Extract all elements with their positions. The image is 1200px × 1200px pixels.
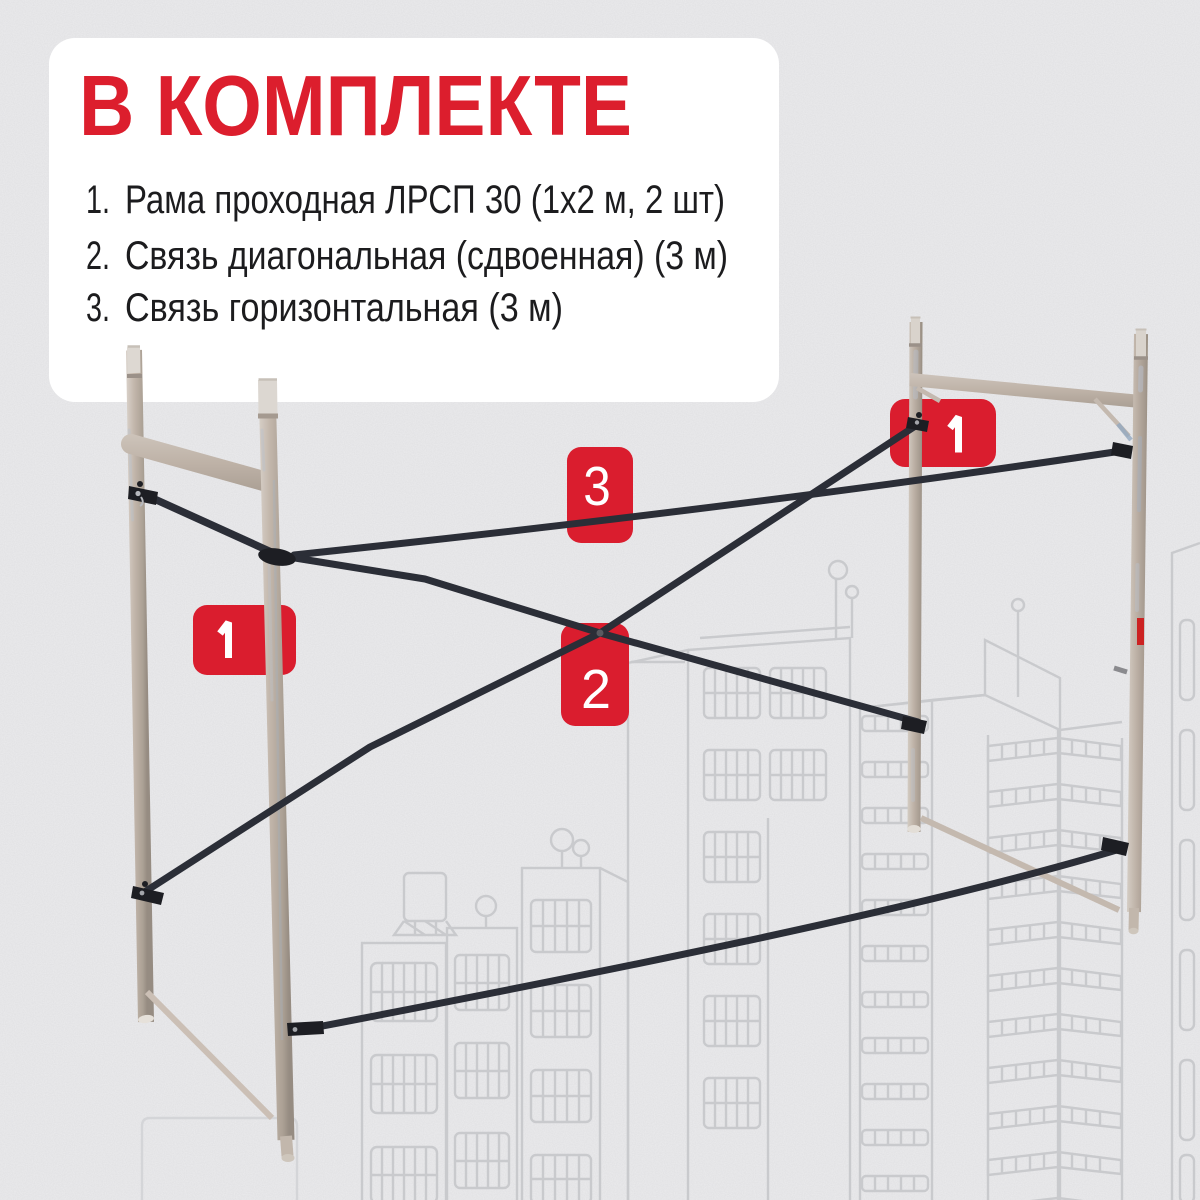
svg-text:Рама проходная ЛРСП 30 (1х2 м,: Рама проходная ЛРСП 30 (1х2 м, 2 шт): [125, 178, 725, 222]
svg-text:3.: 3.: [86, 286, 110, 330]
svg-text:1.: 1.: [86, 178, 110, 222]
svg-text:2.: 2.: [86, 234, 110, 278]
svg-text:В КОМПЛЕКТЕ: В КОМПЛЕКТЕ: [79, 59, 632, 154]
svg-text:3: 3: [583, 455, 611, 517]
svg-text:Связь диагональная (сдвоенная): Связь диагональная (сдвоенная) (3 м): [125, 234, 728, 278]
svg-text:Связь горизонтальная (3 м): Связь горизонтальная (3 м): [125, 286, 563, 330]
svg-text:2: 2: [581, 658, 611, 720]
